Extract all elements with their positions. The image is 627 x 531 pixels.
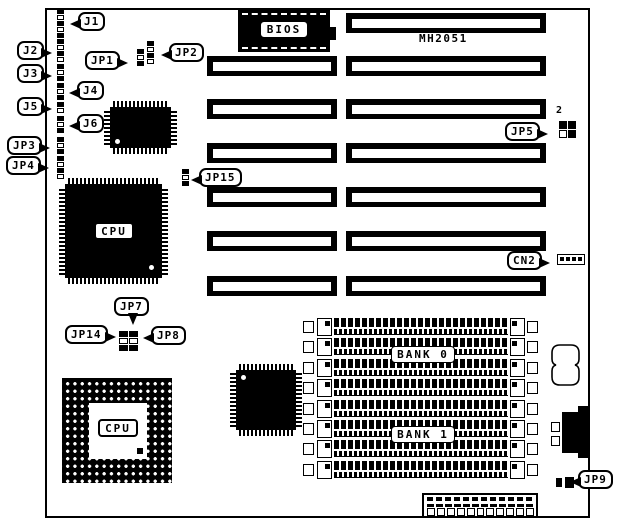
simm-4-clip-right [510, 379, 525, 397]
callout-j6: J6 [77, 114, 104, 133]
battery-outline [551, 343, 581, 387]
cn2-header [557, 254, 585, 265]
simm-3-clip-left [317, 359, 332, 377]
pin-cell [57, 21, 64, 26]
simm-2-clip-right [510, 338, 525, 356]
pin-cell [137, 55, 144, 60]
isa-slot-left-5 [207, 231, 337, 251]
pin-cell [182, 181, 189, 186]
pin-cell [57, 149, 64, 154]
isa-slot-right-6 [346, 231, 546, 251]
pin-cell [137, 49, 144, 54]
pin-cell [182, 175, 189, 180]
callout-jp1: JP1 [85, 51, 120, 70]
isa-slot-left-3 [207, 143, 337, 163]
pin-cell [147, 47, 154, 52]
pin-cell [57, 39, 64, 44]
pin-cell [57, 83, 64, 88]
jp5-jumper-block [559, 121, 576, 138]
simm-1-clip-left [317, 318, 332, 336]
pin-cell [57, 89, 64, 94]
simm-6-clip-left [317, 420, 332, 438]
cpu-qfp-label: CPU [94, 222, 134, 240]
simm-teeth-top [334, 461, 508, 472]
pin-cell [57, 174, 64, 179]
simm-7-stub-right [527, 443, 538, 455]
pin-cell [147, 53, 154, 58]
simm-7-stub-left [303, 443, 314, 455]
isa-slot-right-3 [346, 99, 546, 119]
callout-jp4-text: JP4 [12, 160, 35, 171]
callout-j4-text: J4 [83, 85, 98, 96]
pin-cell [57, 128, 64, 133]
io-chip-pins-left [230, 373, 236, 427]
pin-cell [182, 169, 189, 174]
slot-key [352, 193, 540, 202]
jp9-jumper-a [556, 478, 562, 487]
simm-7-clip-left [317, 440, 332, 458]
slot-key [352, 282, 540, 291]
callout-j3-text: J3 [23, 68, 38, 79]
pin-cell [57, 9, 64, 14]
pin-cell [57, 162, 64, 167]
bank1-label: BANK 1 [391, 426, 455, 443]
pin-cell [137, 61, 144, 66]
pin-cell [57, 108, 64, 113]
simm-8-stub-left [303, 464, 314, 476]
simm-6-stub-right [527, 423, 538, 435]
power-connector [422, 493, 538, 518]
pin-cell [57, 70, 64, 75]
pin-cell [147, 41, 154, 46]
pin-cell [57, 116, 64, 121]
keyboard-connector-pin-a [551, 422, 560, 432]
isa-slot-left-6 [207, 276, 337, 296]
jp3-header [57, 137, 64, 154]
power-connector-dash-bar [427, 504, 534, 507]
bios-label: BIOS [260, 21, 308, 38]
pin-cell [57, 143, 64, 148]
power-connector-top-pins [427, 497, 534, 503]
io-chip-pins-bottom [239, 430, 293, 436]
callout-j6-text: J6 [83, 118, 98, 129]
pin-cell [147, 59, 154, 64]
jp2-jumper [147, 41, 154, 64]
pin-cell [57, 64, 64, 69]
pin-cell [57, 168, 64, 173]
simm-5-stub-left [303, 403, 314, 415]
keyboard-connector-flange [578, 406, 589, 458]
simm-teeth-bottom [334, 370, 508, 375]
pin-cell [57, 95, 64, 100]
slot-key [213, 149, 331, 158]
simm-1-clip-right [510, 318, 525, 336]
simm-1-stub-right [527, 321, 538, 333]
chipset-pins-top [113, 101, 168, 107]
isa-slot-right-5 [346, 187, 546, 207]
isa-slot-right-1 [346, 13, 546, 33]
simm-6-stub-left [303, 423, 314, 435]
power-connector-bottom-pins [427, 508, 534, 516]
bank0-label: BANK 0 [391, 346, 455, 363]
callout-jp14: JP14 [65, 325, 108, 344]
slot-key [213, 282, 331, 291]
slot-key [352, 105, 540, 114]
cpu-pga-pin1-dot [137, 448, 143, 454]
j3-header [57, 64, 64, 81]
motherboard-diagram: MH2051 BIOS CPU CPU BANK 0 BANK [0, 0, 627, 531]
callout-jp3: JP3 [7, 136, 42, 155]
callout-jp8: JP8 [151, 326, 186, 345]
simm-7-clip-right [510, 440, 525, 458]
jp7-jumper-block [119, 331, 138, 351]
simm-4-clip-left [317, 379, 332, 397]
simm-2-stub-right [527, 341, 538, 353]
simm-teeth-bottom [334, 329, 508, 334]
pin-cell [57, 15, 64, 20]
simm-6-clip-right [510, 420, 525, 438]
pin-cell [57, 45, 64, 50]
j2-header [57, 39, 64, 62]
slot-key [213, 193, 331, 202]
callout-j3: J3 [17, 64, 44, 83]
cpu-qfp-pins-right [162, 187, 168, 275]
slot-key [352, 149, 540, 158]
simm-teeth-bottom [334, 472, 508, 477]
simm-teeth-bottom [334, 411, 508, 416]
callout-jp5: JP5 [505, 122, 540, 141]
simm-teeth-bottom [334, 451, 508, 456]
simm-5-stub-right [527, 403, 538, 415]
chipset-pins-right [171, 110, 177, 145]
jp5-pin2-text: 2 [556, 106, 564, 116]
slot-key [352, 62, 540, 71]
callout-jp7-text: JP7 [120, 301, 143, 312]
isa-slot-right-7 [346, 276, 546, 296]
callout-jp9: JP9 [578, 470, 613, 489]
slot-key [352, 19, 540, 28]
simm-1-socket [334, 318, 508, 335]
chipset-pins-left [104, 110, 110, 145]
pin-cell [57, 137, 64, 142]
simm-2-clip-left [317, 338, 332, 356]
simm-8-stub-right [527, 464, 538, 476]
pin-cell [57, 51, 64, 56]
callout-j2-text: J2 [23, 45, 38, 56]
slot-key [352, 237, 540, 246]
j1-header [57, 9, 64, 38]
chipset-pins-bottom [113, 148, 168, 154]
isa-slot-right-2 [346, 56, 546, 76]
pin-cell [57, 76, 64, 81]
isa-slot-left-1 [207, 56, 337, 76]
callout-jp15-text: JP15 [205, 172, 236, 183]
j6-header [57, 116, 64, 133]
cpu-qfp-pins-left [59, 187, 65, 275]
simm-3-stub-left [303, 362, 314, 374]
pin-cell [57, 33, 64, 38]
simm-1-stub-left [303, 321, 314, 333]
bios-dash-bottom [242, 47, 326, 49]
pin-cell [57, 122, 64, 127]
callout-cn2-text: CN2 [513, 255, 536, 266]
simm-5-clip-left [317, 400, 332, 418]
io-chip [236, 370, 296, 430]
callout-jp7: JP7 [114, 297, 149, 316]
board-model-text: MH2051 [419, 33, 468, 44]
io-chip-pins-right [296, 373, 302, 427]
pin-cell [57, 156, 64, 161]
callout-jp3-text: JP3 [13, 140, 36, 151]
chipset-chip [110, 107, 171, 148]
io-chip-pin1-dot [241, 375, 246, 380]
callout-j4: J4 [77, 81, 104, 100]
callout-jp1-text: JP1 [91, 55, 114, 66]
callout-jp9-text: JP9 [584, 474, 607, 485]
slot-key [213, 237, 331, 246]
simm-4-socket [334, 379, 508, 396]
simm-teeth-top [334, 318, 508, 329]
slot-key [213, 62, 331, 71]
slot-key [213, 105, 331, 114]
keyboard-connector-pin-b [551, 436, 560, 446]
pin-cell [57, 102, 64, 107]
simm-4-stub-right [527, 382, 538, 394]
simm-5-socket [334, 400, 508, 417]
callout-cn2: CN2 [507, 251, 542, 270]
simm-5-clip-right [510, 400, 525, 418]
simm-teeth-top [334, 379, 508, 390]
simm-8-socket [334, 461, 508, 478]
chip-pin1-dot [115, 139, 120, 144]
j4-header [57, 83, 64, 100]
bios-dash-top [242, 13, 326, 15]
simm-8-clip-right [510, 461, 525, 479]
isa-slot-right-4 [346, 143, 546, 163]
cpu-qfp-pins-top [68, 178, 159, 184]
simm-teeth-top [334, 400, 508, 411]
pin-cell [57, 27, 64, 32]
jp15-jumper [182, 169, 189, 186]
cpu-pga-label: CPU [98, 419, 138, 437]
isa-slot-left-2 [207, 99, 337, 119]
callout-j2: J2 [17, 41, 44, 60]
pin-cell [57, 57, 64, 62]
callout-j5: J5 [17, 97, 44, 116]
callout-j1-text: J1 [84, 16, 99, 27]
simm-8-clip-left [317, 461, 332, 479]
callout-jp8-text: JP8 [157, 330, 180, 341]
callout-jp15: JP15 [199, 168, 242, 187]
simm-3-clip-right [510, 359, 525, 377]
cpu-qfp-pins-bottom [68, 278, 159, 284]
simm-3-stub-right [527, 362, 538, 374]
simm-2-stub-left [303, 341, 314, 353]
io-chip-pins-top [239, 364, 293, 370]
callout-jp2-text: JP2 [175, 47, 198, 58]
jp1-jumper [137, 49, 144, 66]
callout-jp2: JP2 [169, 43, 204, 62]
simm-4-stub-left [303, 382, 314, 394]
callout-jp5-text: JP5 [511, 126, 534, 137]
jp4-header [57, 156, 64, 179]
isa-slot-left-4 [207, 187, 337, 207]
cpu-qfp-pin1-dot [149, 265, 154, 270]
callout-j5-text: J5 [23, 101, 38, 112]
callout-jp4: JP4 [6, 156, 41, 175]
callout-j1: J1 [78, 12, 105, 31]
callout-jp14-text: JP14 [71, 329, 102, 340]
j5-header [57, 102, 64, 113]
simm-teeth-bottom [334, 390, 508, 395]
bios-chip-tab [330, 27, 336, 40]
